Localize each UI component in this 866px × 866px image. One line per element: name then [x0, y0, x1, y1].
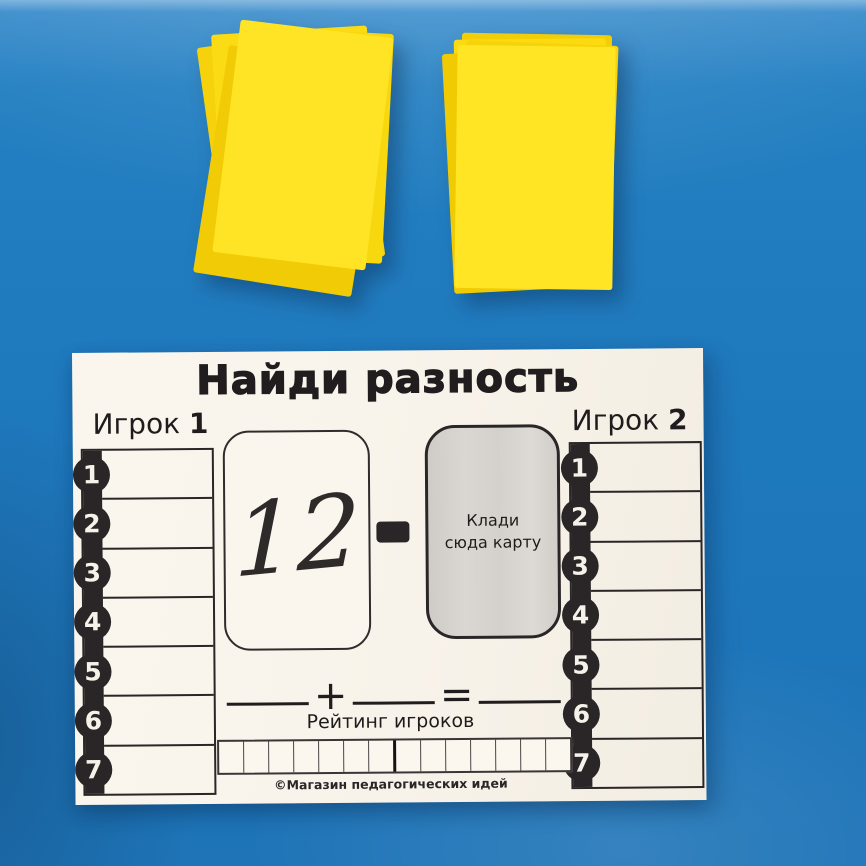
- plus-operator: +: [314, 681, 348, 711]
- rating-cell[interactable]: [496, 739, 521, 770]
- rating-grid: [217, 737, 572, 775]
- score-slot[interactable]: 3: [103, 548, 213, 598]
- score-slot[interactable]: 1: [102, 450, 212, 500]
- slot-number-badge: 5: [562, 646, 599, 683]
- slot-number-badge: 3: [74, 554, 111, 591]
- player-2-name: Игрок: [572, 403, 660, 437]
- yellow-card-stack-right[interactable]: [446, 34, 636, 299]
- equation-blank-2[interactable]: [353, 701, 435, 705]
- rating-cell[interactable]: [421, 740, 446, 771]
- score-slot[interactable]: 2: [590, 492, 700, 542]
- player-1-number: 1: [189, 407, 209, 440]
- player-2-label: Игрок 2: [572, 403, 688, 437]
- game-board: Найди разность Игрок 1 Игрок 2 1 2 3 4 5…: [72, 348, 707, 805]
- rating-cell[interactable]: [244, 741, 269, 772]
- player-2-score-table: 1 2 3 4 5 6 7: [569, 441, 705, 789]
- rating-cell[interactable]: [319, 741, 344, 772]
- equation-blank-1[interactable]: [227, 702, 309, 706]
- slot-number-badge: 4: [74, 604, 111, 641]
- player-1-name: Игрок: [92, 407, 180, 441]
- equation-row: + =: [226, 657, 560, 708]
- slot-number-badge: 1: [73, 456, 110, 493]
- page-title: Найди разность: [72, 354, 703, 405]
- score-slot[interactable]: 4: [591, 591, 701, 641]
- placement-hint-text: Клади сюда карту: [443, 509, 543, 555]
- card-placement-zone[interactable]: Клади сюда карту: [425, 424, 562, 639]
- score-slot[interactable]: 3: [591, 542, 701, 592]
- rating-cell[interactable]: [546, 739, 570, 770]
- score-slot[interactable]: 4: [103, 598, 213, 648]
- photo-scene: Найди разность Игрок 1 Игрок 2 1 2 3 4 5…: [0, 0, 866, 866]
- rating-cell[interactable]: [521, 739, 546, 770]
- rating-cell[interactable]: [219, 742, 244, 773]
- yellow-card-top: [212, 19, 393, 270]
- equation-blank-3[interactable]: [479, 700, 561, 704]
- player-1-label: Игрок 1: [92, 407, 208, 441]
- slot-number-badge: 5: [74, 653, 111, 690]
- player-1-score-table: 1 2 3 4 5 6 7: [81, 448, 217, 796]
- score-slot[interactable]: 5: [103, 647, 213, 697]
- rating-cell[interactable]: [344, 741, 369, 772]
- rating-cell[interactable]: [446, 740, 471, 771]
- yellow-card-top: [454, 45, 615, 290]
- slot-number-badge: 2: [73, 505, 110, 542]
- score-slot[interactable]: 5: [591, 640, 701, 690]
- slot-number-badge: 2: [561, 498, 598, 535]
- player-2-number: 2: [668, 403, 688, 436]
- slot-number-badge: 4: [562, 597, 599, 634]
- handwritten-number: 12: [233, 480, 361, 601]
- score-slot[interactable]: 1: [590, 443, 700, 493]
- equals-operator: =: [440, 680, 474, 710]
- minus-operator: -: [376, 521, 409, 542]
- score-slot[interactable]: 2: [102, 499, 212, 549]
- rating-cell[interactable]: [269, 741, 294, 772]
- rating-cell[interactable]: [369, 740, 396, 771]
- rating-cell[interactable]: [294, 741, 319, 772]
- rating-cell[interactable]: [471, 740, 496, 771]
- yellow-card-stack-left[interactable]: [198, 22, 403, 292]
- minuend-card[interactable]: 12: [223, 430, 372, 651]
- slot-number-badge: 3: [562, 548, 599, 585]
- rating-cell[interactable]: [396, 740, 421, 771]
- slot-number-badge: 1: [561, 449, 598, 486]
